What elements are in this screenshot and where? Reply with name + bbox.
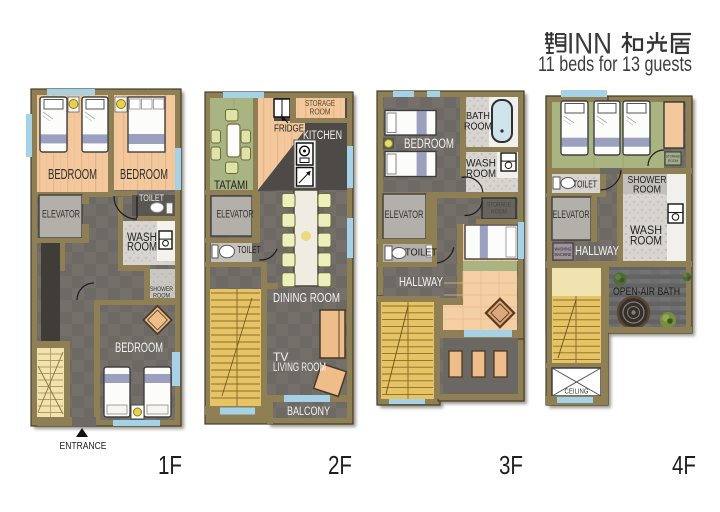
svg-text:ROOM: ROOM xyxy=(668,159,678,163)
svg-text:ELEVATOR: ELEVATOR xyxy=(385,209,424,221)
svg-text:LIVING ROOM: LIVING ROOM xyxy=(273,360,326,374)
svg-text:MACHINE: MACHINE xyxy=(555,252,572,257)
svg-text:ROOM: ROOM xyxy=(464,122,492,133)
svg-text:BEDROOM: BEDROOM xyxy=(115,339,163,355)
svg-text:11 beds for 13 guests: 11 beds for 13 guests xyxy=(538,52,692,76)
svg-text:TATAMI: TATAMI xyxy=(214,180,248,192)
svg-text:TOILET: TOILET xyxy=(238,245,261,256)
svg-text:DINING ROOM: DINING ROOM xyxy=(273,290,340,305)
svg-text:2F: 2F xyxy=(328,450,352,480)
svg-text:BATH: BATH xyxy=(466,111,490,122)
svg-text:ENTRANCE: ENTRANCE xyxy=(60,440,107,452)
svg-text:ROOM: ROOM xyxy=(153,293,170,300)
svg-text:ROOM: ROOM xyxy=(127,242,157,254)
svg-text:TOILET: TOILET xyxy=(405,248,437,259)
svg-text:OPEN-AIR BATH: OPEN-AIR BATH xyxy=(613,286,680,298)
svg-text:BEDROOM: BEDROOM xyxy=(48,166,97,183)
svg-text:WASHING: WASHING xyxy=(555,247,572,252)
svg-text:ROOM: ROOM xyxy=(466,168,496,180)
svg-text:FRIDGE: FRIDGE xyxy=(274,124,304,135)
svg-text:KITCHEN: KITCHEN xyxy=(303,130,342,142)
svg-text:ELEVATOR: ELEVATOR xyxy=(553,209,590,221)
svg-text:ELEVATOR: ELEVATOR xyxy=(217,209,254,221)
svg-text:ROOM: ROOM xyxy=(310,108,331,117)
svg-text:ROOM: ROOM xyxy=(630,234,662,248)
svg-text:HALLWAY: HALLWAY xyxy=(575,243,619,258)
svg-text:ROOM: ROOM xyxy=(491,210,507,216)
svg-text:HALLWAY: HALLWAY xyxy=(399,274,443,289)
svg-text:STORAGE: STORAGE xyxy=(487,203,511,209)
svg-text:BEDROOM: BEDROOM xyxy=(120,166,168,183)
svg-text:ROOM: ROOM xyxy=(633,185,661,196)
svg-text:CEILING: CEILING xyxy=(565,389,589,396)
svg-text:BEDROOM: BEDROOM xyxy=(404,136,454,151)
svg-text:BALCONY: BALCONY xyxy=(287,404,330,418)
svg-text:TOILET: TOILET xyxy=(139,193,164,203)
svg-text:4F: 4F xyxy=(672,450,696,480)
svg-text:ELEVATOR: ELEVATOR xyxy=(42,209,80,221)
svg-text:TOILET: TOILET xyxy=(573,180,597,191)
svg-text:3F: 3F xyxy=(499,450,523,480)
svg-text:STORAGE: STORAGE xyxy=(666,155,680,159)
svg-text:1F: 1F xyxy=(158,450,182,480)
